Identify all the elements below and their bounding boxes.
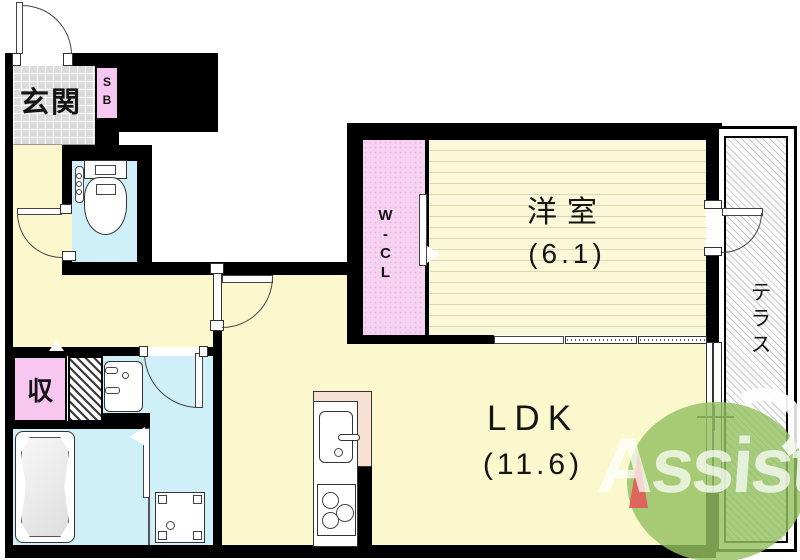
toilet-panel-button [76,189,82,195]
sliding-door-lock-mark [713,405,715,431]
washroom-door-jamb-right [199,346,208,357]
toilet-doorway [62,212,72,253]
wall-toilet-top [62,145,152,161]
kitchen-wall-stub [358,467,372,547]
wcl-label: W-CL [377,207,394,283]
pan-drain [166,521,175,530]
pan-corner [193,531,202,540]
washbasin-detail [105,387,120,394]
terrace-doorway [706,207,722,250]
storage-label: 収 [27,371,53,408]
kitchen-faucet [338,434,360,441]
wall-toilet-left-upper [62,161,72,206]
storage-closet: 収 [13,356,67,422]
toilet-door-jamb-top [60,204,72,214]
toilet-panel-button [76,181,82,187]
wall-washroom-top-left [13,347,141,356]
wall-top-main [347,123,722,140]
wcl-door [419,194,427,266]
floor-plan: SB 収 テラス W-CL [0,0,800,560]
toilet-door-jamb-bottom [62,251,76,261]
wall-left-outer [5,53,13,558]
wall-wcl-left [347,123,363,344]
ldk-floor-main [347,344,706,545]
stove-burner [322,492,339,509]
shoe-box: SB [95,66,119,120]
washroom-door-jamb-left [139,346,148,357]
western-room-label: 洋室 [527,187,607,231]
pan-corner [158,495,167,504]
western-room-size-wrap: (6.1) [457,237,677,271]
wall-entry-top [72,53,218,66]
entry-door-jamb-left [12,53,21,66]
pan-corner [193,495,202,504]
hallway-floor-lower [13,275,213,348]
wcl-floor [363,140,425,335]
western-room-label-wrap: 洋室 [457,191,677,227]
genkan-label: 玄関 [20,79,82,121]
washbasin-detail [105,367,118,374]
toilet-tank-detail [95,165,116,175]
stove-burner [322,512,339,529]
shoe-box-label: SB [100,75,114,111]
sliding-partition-panel [565,336,637,344]
bathtub-basin [21,437,69,537]
terrace-door-jamb-bottom [704,247,722,256]
ldk-label-wrap: LDK [438,399,628,439]
wall-under-shoebox [95,120,119,148]
wall-genkan-right [119,66,218,132]
wall-bath-top [13,421,103,429]
pipe-space-hatch [68,356,103,422]
terrace-label: テラス [744,281,774,359]
sliding-door-lock-mark [697,416,734,418]
toilet-panel-button [76,173,82,179]
pan-corner [158,531,167,540]
wall-wash-bath [100,413,150,429]
wall-room-divider [347,335,494,344]
sink-drain [334,448,343,457]
ldk-size: (11.6) [483,448,583,482]
wall-toilet-right [137,161,152,262]
ldk-size-wrap: (11.6) [438,447,628,483]
entry-door-swing [22,5,72,55]
ldk-door-cap-top [210,263,224,274]
toilet-seat-detail [96,184,116,195]
wall-hall-ldk-horizontal [62,262,347,275]
sliding-partition-panel [638,336,707,344]
entry-door-jamb-right [63,53,73,66]
wall-bath-wash-line [148,498,150,545]
partition-panel-fixed [494,336,564,344]
washbasin-faucet [122,372,129,379]
western-room-size: (6.1) [528,238,606,270]
wall-hall-ldk-vertical [213,330,222,548]
ldk-label: LDK [487,399,579,439]
terrace-door-jamb-top [704,200,722,209]
